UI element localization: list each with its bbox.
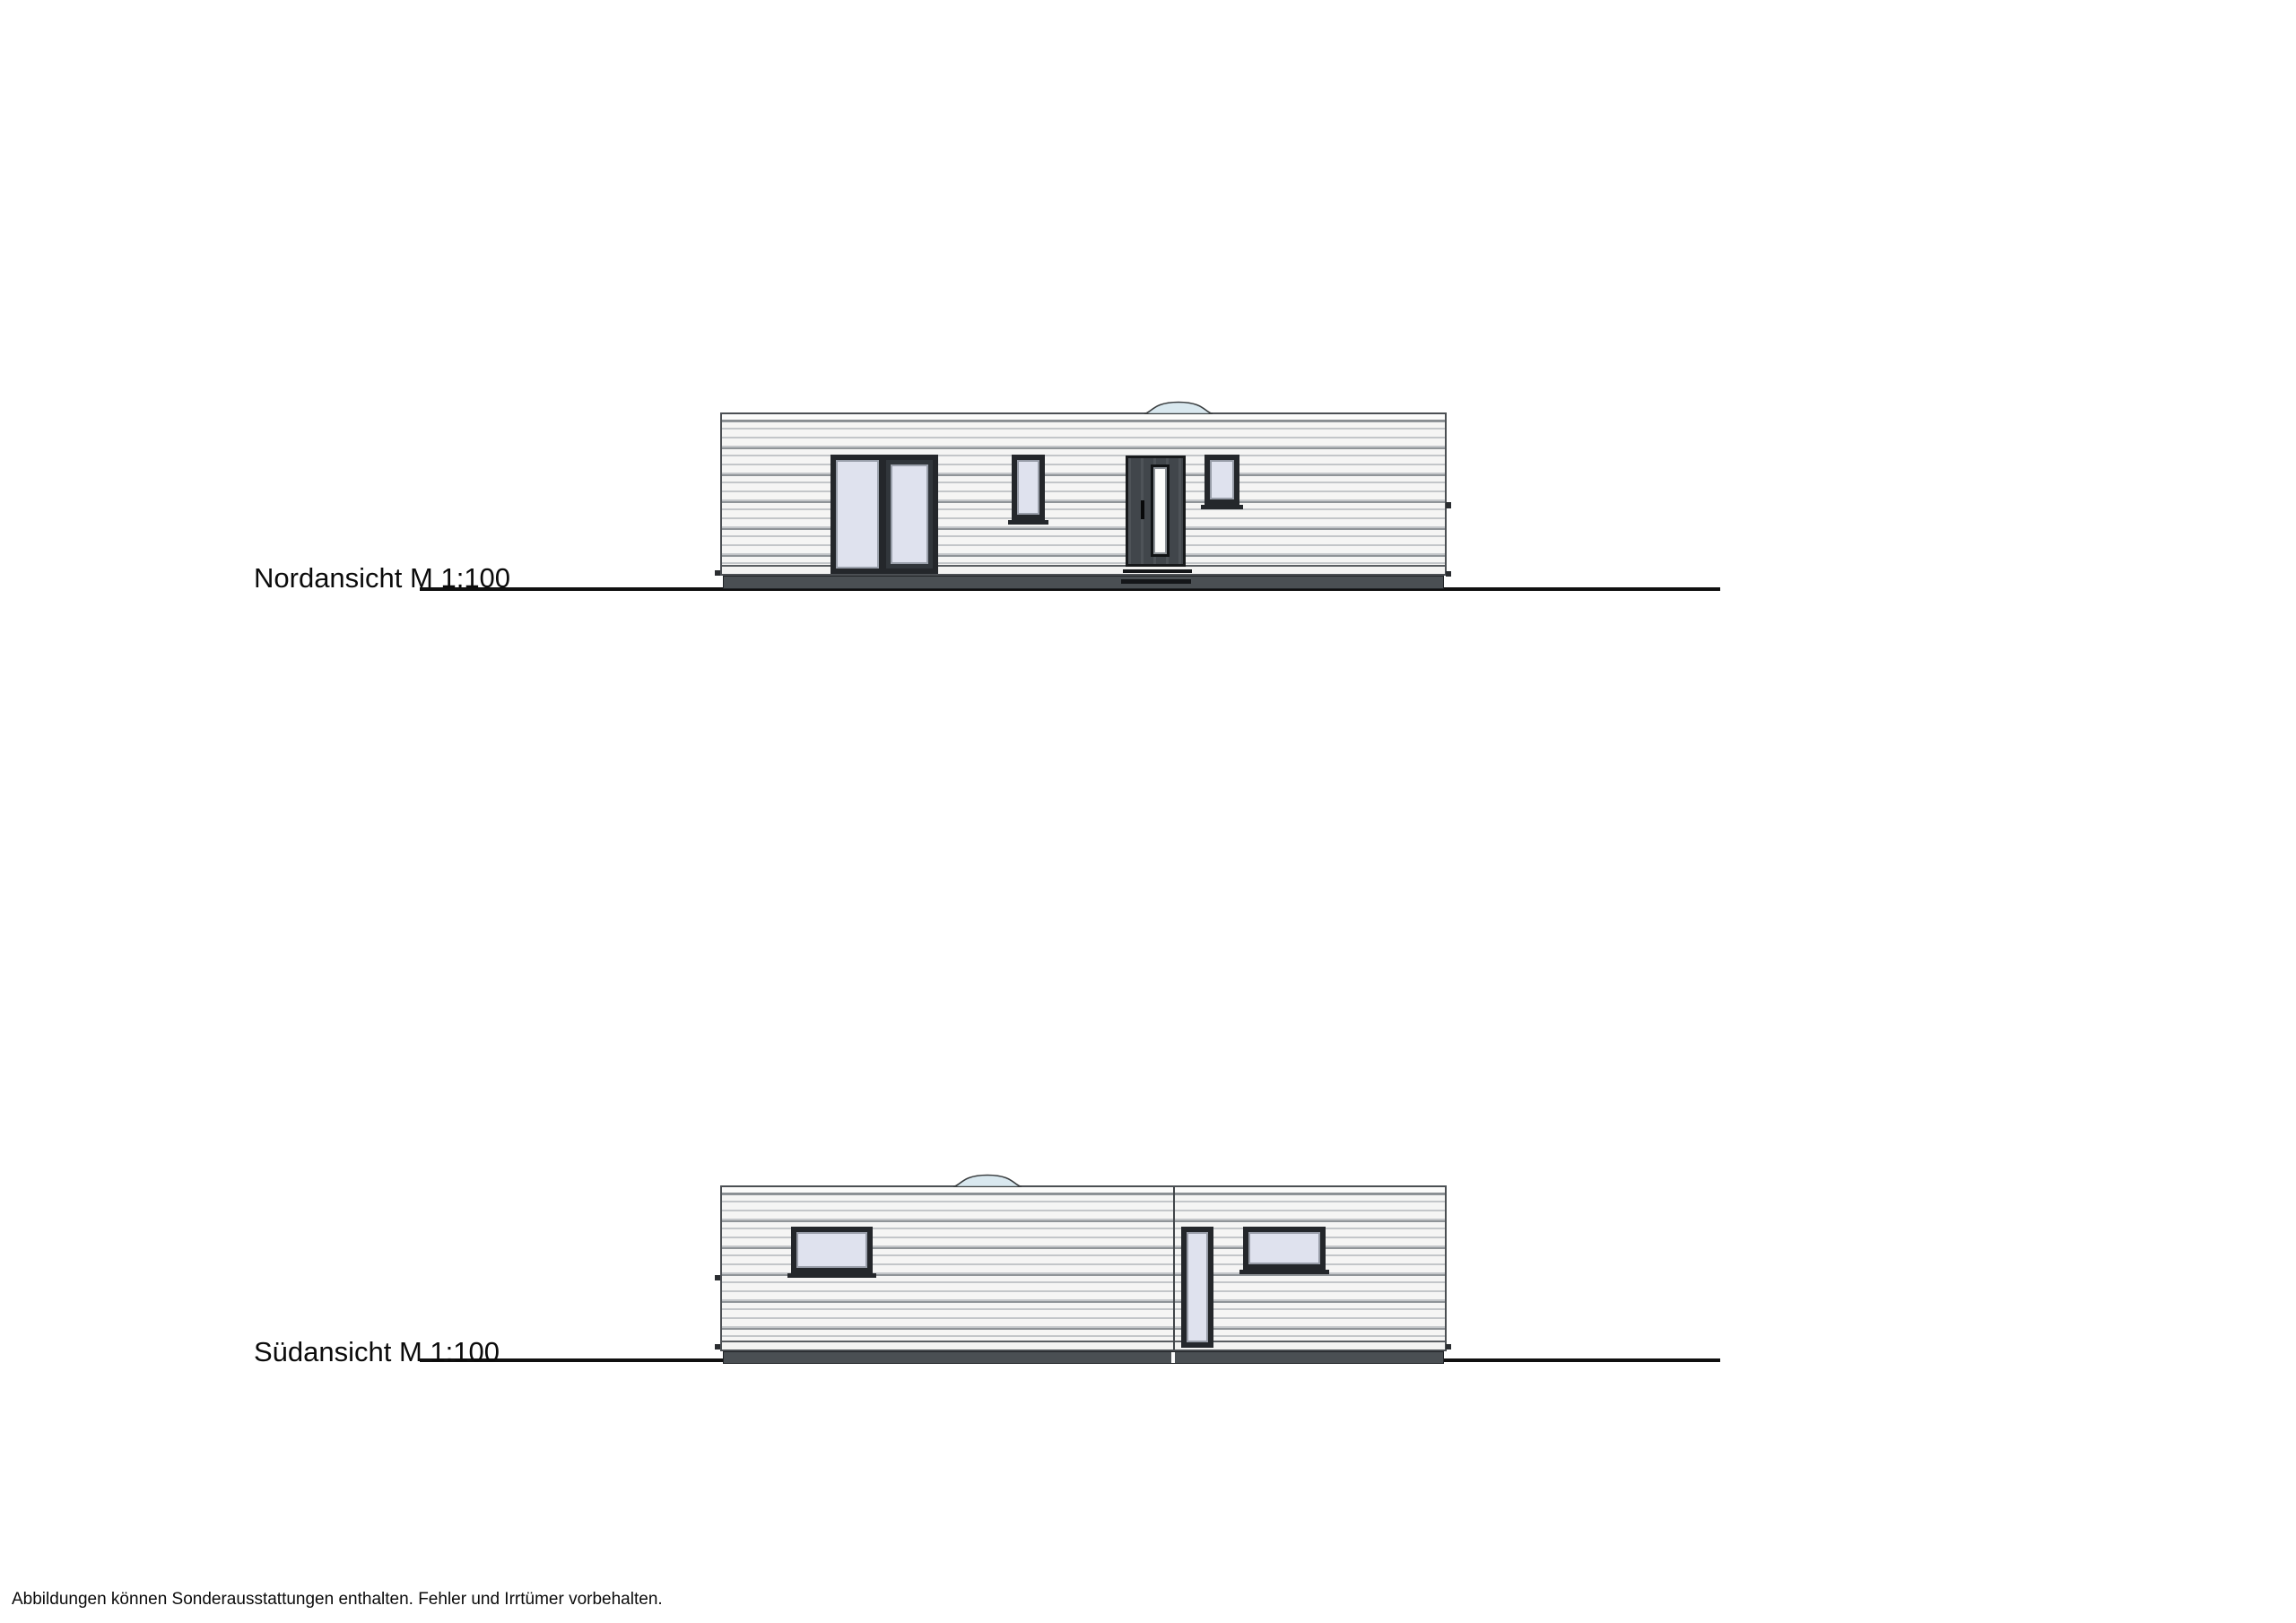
south-roof-dome-skylight-icon (952, 1174, 1022, 1187)
south-left-window (791, 1227, 873, 1273)
north-plinth (723, 576, 1444, 589)
north-roof-dome-skylight-icon (1144, 401, 1213, 414)
south-left-window-sill (787, 1273, 876, 1278)
south-wall-fitting-right-bottom (1446, 1344, 1451, 1350)
south-right-window-sill (1239, 1270, 1329, 1274)
south-roof-fascia (722, 1187, 1445, 1193)
elevation-drawing-sheet: Nordansicht M 1:100 Südansicht M 1:100 A… (0, 0, 2296, 1623)
south-wall-fitting-left (715, 1275, 720, 1280)
south-module-seam (1173, 1187, 1175, 1350)
patio-fixed-pane (836, 460, 879, 568)
north-narrow-window-sill (1008, 520, 1048, 525)
patio-door-leaf (886, 460, 933, 568)
north-small-window-sill (1201, 505, 1243, 509)
north-roof-fascia (722, 414, 1445, 421)
entrance-door-handle-icon (1141, 500, 1144, 519)
south-tall-narrow-window (1181, 1227, 1213, 1348)
disclaimer-text: Abbildungen können Sonderausstattungen e… (12, 1591, 663, 1610)
south-view-label: Südansicht M 1:100 (254, 1338, 500, 1366)
north-narrow-window (1012, 455, 1045, 520)
south-right-window (1243, 1227, 1326, 1270)
north-wall-fitting-right-bottom (1446, 571, 1451, 577)
north-patio-glass-door (831, 455, 938, 574)
north-wall-fitting-right (1446, 502, 1451, 508)
south-bottom-trim (722, 1341, 1445, 1350)
north-wall-fitting-left-bottom (715, 570, 720, 576)
patio-mullion (879, 460, 886, 568)
north-door-mat-bar (1121, 579, 1191, 584)
south-wall-fitting-left-bottom (715, 1344, 720, 1350)
north-small-window (1205, 455, 1239, 505)
entrance-door-glazing (1151, 464, 1170, 557)
south-plinth-seam-gap (1171, 1352, 1175, 1363)
north-view-label: Nordansicht M 1:100 (254, 564, 510, 592)
south-elevation-building (720, 1185, 1447, 1351)
north-door-step (1123, 569, 1192, 573)
north-elevation-building (720, 412, 1447, 576)
south-plinth (723, 1351, 1444, 1364)
north-entrance-door (1126, 456, 1186, 567)
